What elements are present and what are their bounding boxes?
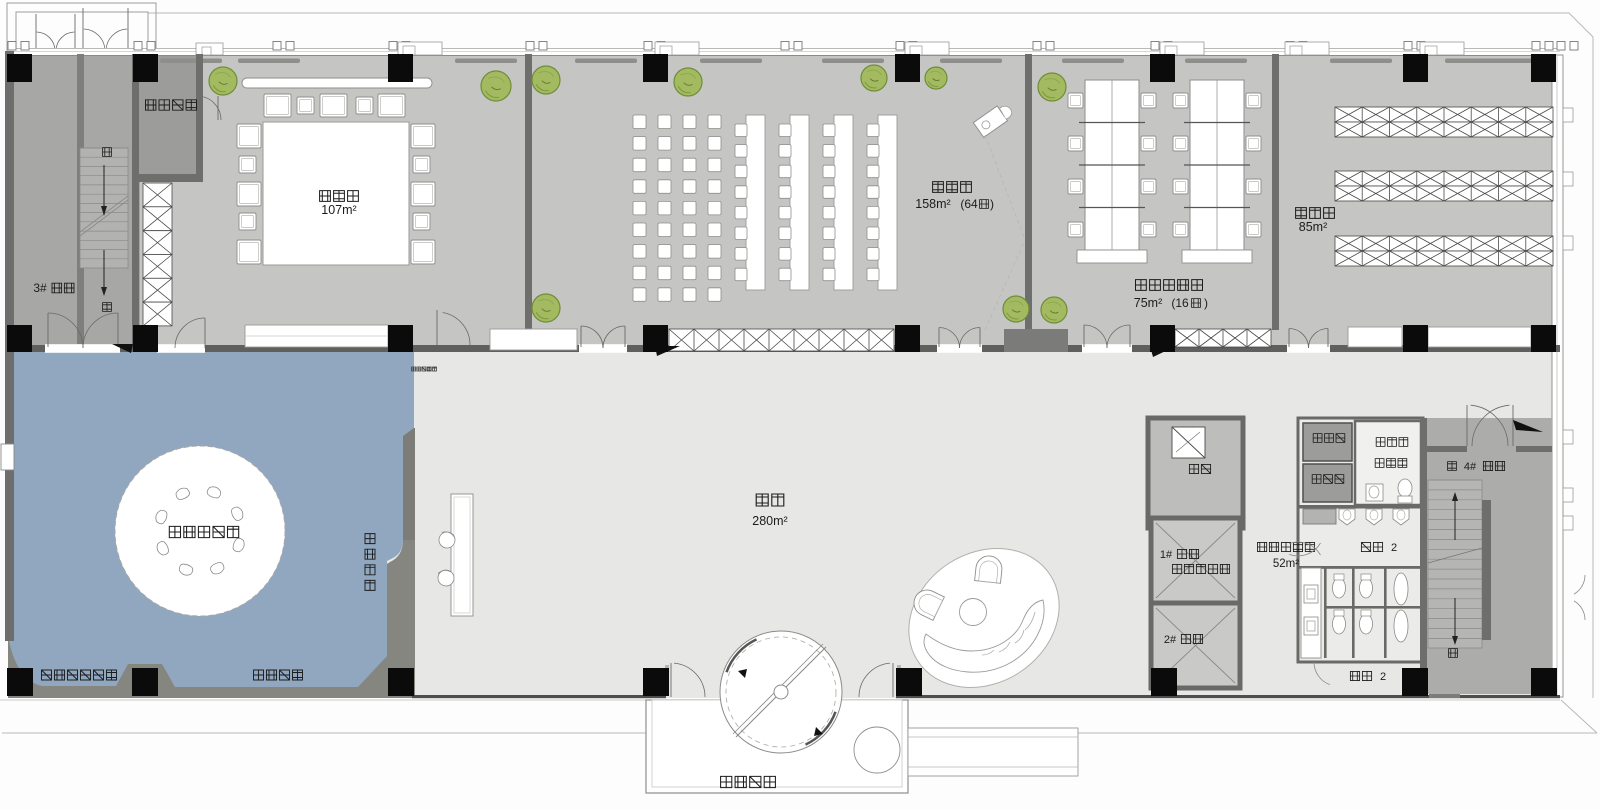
- svg-text:52m²: 52m²: [1273, 558, 1299, 570]
- svg-text:(64: (64: [960, 197, 978, 211]
- svg-text:85m²: 85m²: [1299, 220, 1327, 234]
- svg-text:75m²: 75m²: [1134, 296, 1162, 310]
- svg-text:2: 2: [1380, 671, 1386, 683]
- svg-text:1#: 1#: [1160, 549, 1173, 561]
- svg-text:2#: 2#: [1164, 634, 1177, 646]
- svg-text:): ): [1204, 296, 1208, 310]
- svg-text:107m²: 107m²: [321, 203, 356, 217]
- svg-text:3#: 3#: [33, 281, 47, 295]
- svg-text:2: 2: [1391, 542, 1397, 554]
- svg-text:(16: (16: [1171, 296, 1189, 310]
- svg-text:): ): [990, 197, 994, 211]
- svg-text:280m²: 280m²: [752, 514, 787, 528]
- svg-text:4#: 4#: [1464, 461, 1477, 473]
- svg-text:158m²: 158m²: [915, 197, 950, 211]
